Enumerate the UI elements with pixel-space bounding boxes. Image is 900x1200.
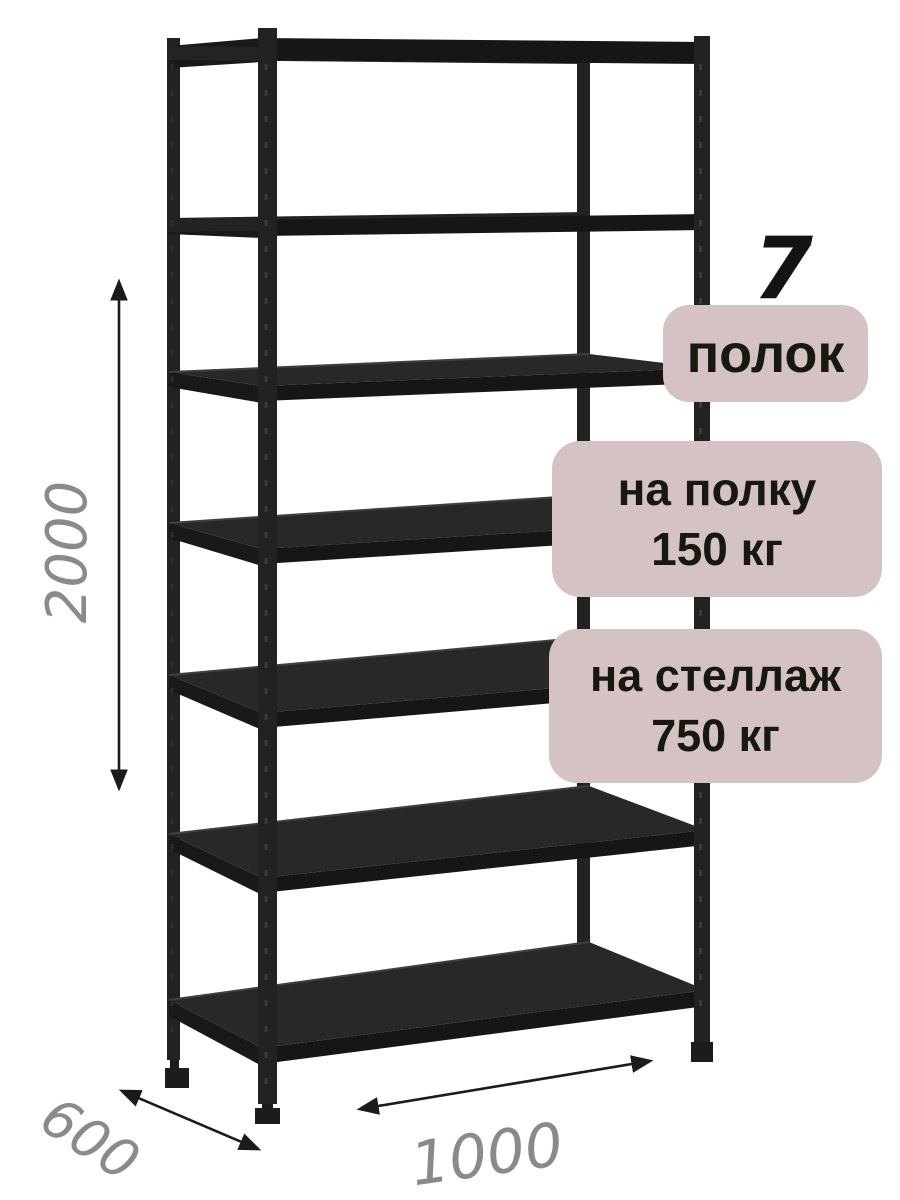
shelving-rack-illustration: [0, 0, 900, 1200]
product-image: 2000 600 1000 7 полок на полку 150 кг на…: [0, 0, 900, 1200]
shelf-load-value: 150 кг: [651, 519, 783, 579]
rack-back-posts: [165, 38, 590, 1088]
width-dimension-arrow: [360, 1061, 650, 1109]
shelf-count-badge: полок: [663, 305, 868, 402]
rack-load-text: на стеллаж: [590, 646, 841, 706]
rack-load-badge: на стеллаж 750 кг: [549, 629, 882, 783]
height-dimension-label: 2000: [40, 452, 100, 652]
shelf-count-unit-label: полок: [687, 323, 845, 385]
shelf-load-text: на полку: [618, 459, 817, 519]
shelf-load-badge: на полку 150 кг: [552, 441, 882, 597]
rack-load-value: 750 кг: [651, 706, 780, 766]
shelf-count-number: 7: [733, 226, 833, 312]
